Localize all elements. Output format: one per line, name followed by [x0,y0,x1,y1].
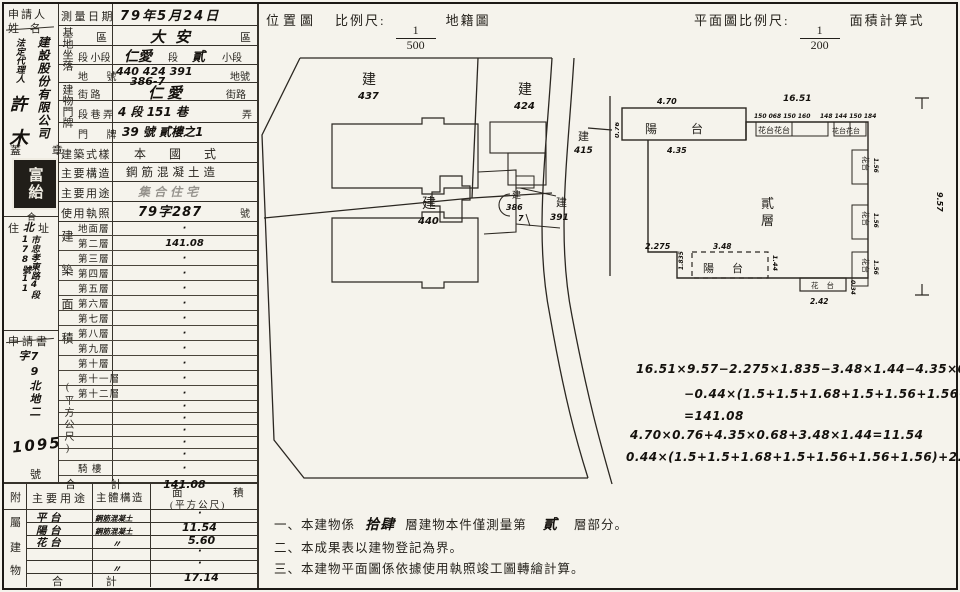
rule [4,330,58,331]
attached-header-use: 主要用途 [32,490,88,506]
top-balcony-label: 陽台 [645,121,737,136]
floor-row: · [59,412,257,424]
parcel-386-number: 386 [506,203,523,212]
flower-box-label-top-right: 花台花台 [832,126,860,135]
survey-date-label: 測量日期 [61,8,115,24]
attached-row-area: 11.54 [182,521,217,534]
section-suffix: 小段 [222,49,242,64]
floor-row: · [59,400,257,412]
attached-row-use: 花 台 [36,535,61,550]
section-label: 段 小段 [78,49,111,64]
note-1-hand-level: 貳 [543,517,558,533]
rule [58,142,257,143]
floor-area-table: 地面層· 第二層141.08 第三層· 第四層· 第五層· 第六層· 第七層· … [59,221,257,482]
floor-row: 第七層· [59,310,257,325]
district-suffix: 區 [240,29,251,45]
rule [58,162,257,163]
style-label: 建築式樣 [61,146,111,162]
floor-label-char2: 層 [761,213,774,228]
attached-row-structure: 〃 [112,537,121,550]
address-label-right: 址 [38,220,49,236]
district-label: 區 [96,29,107,45]
dim-right-seg: 1.56 [872,213,879,228]
district-value: 大安 [150,26,200,47]
location-map-drawing: 建 437 建 424 建 415 建 440 建 386 7 建 391 [258,36,615,498]
parcel-424-label: 建 [518,82,532,98]
note-3: 三、本建物平面圖係依據使用執照竣工圖轉繪計算。 [274,558,585,577]
structure-value: 鋼筋混凝土造 [126,164,219,180]
dim-bottom-balcony-width: 3.48 [713,242,732,251]
dim-top-left-small: 150 068 150 160 [754,113,810,120]
parcel-386-number2: 7 [518,214,524,223]
note-1-mid: 層建物本件僅測量第 [405,518,527,532]
floor-row: 第三層· [59,250,257,265]
floor-label-char1: 貳 [761,196,774,211]
flower-box-label-right: 花台 [861,156,871,171]
legal-agent-title: 法定代理人 [14,38,23,90]
parcel-440-label: 建 [422,196,436,212]
floor-row: 第十二層· [59,385,257,400]
attached-header-structure: 主體構造 [96,490,144,505]
attached-corner-label: 附 [10,489,21,505]
permit-suffix: 號 [240,205,250,220]
lot-value2: 386-7 [130,75,165,88]
structure-label: 主要構造 [61,165,111,181]
area-calc-line2: −0.44×(1.5+1.5+1.68+1.5+1.56+1.56+1.56) [684,387,960,401]
attached-group-char: 物 [10,562,21,578]
flower-box-label-right: 花台 [861,211,871,226]
dim-right-seg: 1.56 [872,158,879,173]
floor-row: 第四層· [59,265,257,280]
floor-row: 第二層141.08 [59,235,257,250]
application-number-big: 1095 [11,433,62,456]
flower-box-label-top-left: 花台花台 [758,125,790,135]
attached-row-structure: 鋼筋混凝土 [95,513,133,524]
note-1-pre: 一、本建物係 [274,518,355,532]
location-map-scale-label: 比例尺: [335,13,386,28]
attached-row-area: · [198,508,202,519]
note-1-post: 層部分。 [574,518,628,532]
attached-total-label: 合 計 [52,573,137,589]
flower-box-label-right: 花台 [861,258,871,273]
survey-date-value: 79年5月24日 [120,5,220,24]
section-mid-label: 段 [168,49,178,64]
site-group-label: 基地坐落 [61,27,72,81]
door-group-label: 建物門牌 [61,84,72,140]
building-survey-form: 申請人 姓 名 建設股份有限公司 法定代理人 許 木 蓋 章 富紿 合 住 北 … [0,0,960,592]
lane-suffix: 弄 [242,106,252,121]
parcel-415-label: 建 [578,129,589,143]
floor-row: · [59,448,257,460]
use-label: 主要用途 [61,185,111,201]
dim-balcony-width: 4.70 [656,97,677,106]
application-number: 79北地二字 [18,350,40,430]
floor-row: 第十一層· [59,370,257,385]
dim-notch-height: 1.835 [678,251,685,270]
floor-row: · [59,424,257,436]
floor-row: 地面層· [59,221,257,235]
bottom-flower-label: 花台 [811,280,842,290]
lot-suffix: 地號 [230,68,250,83]
floor-row: 第六層· [59,295,257,310]
floor-plan-scale-fraction: 1200 [800,24,840,53]
rule [58,181,257,182]
dim-right-seg: 1.56 [872,260,879,275]
floor-plan-drawing: 4.70 陽台 4.35 0.76 16.51 150 068 150 160 … [615,92,960,322]
area-calc-line3: =141.08 [684,409,744,423]
attached-total-value: 17.14 [184,571,219,584]
rule [26,560,257,561]
dim-bottom-flower-height: 0.34 [849,280,856,295]
parcel-437-number: 437 [357,91,379,102]
parcel-437-label: 建 [362,72,376,88]
location-map-suffix: 地籍圖 [446,13,491,28]
note-1-hand-floors: 拾肆 [365,517,395,533]
door-number-label: 門 牌 [78,126,125,141]
agent-name-char1: 許 [10,90,27,115]
dim-width-total: 16.51 [783,94,811,104]
floor-row-arcade: 騎 樓· [59,460,257,475]
section-value2: 貳 [192,46,205,65]
dim-balcony-inner: 4.35 [666,146,687,155]
floor-row: 第九層· [59,340,257,355]
permit-value: 79字287 [138,201,202,220]
attached-row-area: · [198,546,202,557]
door-number-value: 39 號 貳樓之1 [122,123,203,140]
applicant-company-name: 建設股份有限公司 [37,36,49,156]
company-seal: 富紿 [12,158,58,210]
lane-value: 4 段 151 巷 [118,103,188,120]
parcel-415-number: 415 [573,146,593,156]
attached-row-area: · [198,558,202,569]
floor-plan-title: 平面圖比例尺: [694,13,790,28]
dim-top-right-small: 148 144 150 184 [820,113,876,120]
section-value: 仁愛 [124,46,152,66]
use-value: 集合住宅 [138,183,202,200]
floor-plan-suffix: 面積計算式 [850,13,925,28]
parcel-424-number: 424 [513,101,535,112]
floor-row: · [59,436,257,448]
floor-plan-header: 平面圖比例尺: 1200 面積計算式 [694,10,925,53]
parcel-391-label: 建 [556,195,567,209]
location-map-title: 位置圖 [266,13,317,28]
dim-balcony-height: 0.76 [615,121,621,138]
floor-row: 第八層· [59,325,257,340]
lane-label: 段 巷 弄 [78,106,113,121]
address-hand-first: 北 [23,219,34,235]
cadastral-linework [262,58,612,484]
parcel-391-number: 391 [550,213,569,223]
bottom-balcony-label: 陽台 [703,261,761,275]
attached-group-char: 建 [10,539,21,555]
parcel-440-number: 440 [417,216,439,227]
attached-group-char: 屬 [10,514,21,530]
style-value: 本 國 式 [134,145,226,162]
dim-bottom-balcony-height: 1.44 [771,255,779,272]
area-calc-line5: 0.44×(1.5+1.5+1.68+1.5+1.56+1.56+1.56)+2… [626,450,960,464]
street-label: 街 路 [78,86,101,101]
dim-bottom-flower-width: 2.42 [810,297,829,306]
floor-row: 第五層· [59,280,257,295]
floor-row: 第十層· [59,355,257,370]
address-value: 市忠孝東路4段178號11 [20,235,38,327]
attached-row-structure: 鋼筋混凝土 [95,526,133,537]
dim-height-total: 9.57 [935,192,944,212]
seal-characters: 富紿 [25,167,46,201]
area-calc-line1: 16.51×9.57−2.275×1.835−3.48×1.44−4.35×0.… [636,362,960,376]
permit-label: 使用執照 [61,205,111,221]
application-number-suffix: 號 [30,466,41,482]
note-1: 一、本建物係 拾肆 層建物本件僅測量第 貳 層部分。 [274,514,628,534]
address-label-left: 住 [8,220,19,236]
street-suffix: 街路 [226,86,246,101]
parcel-386-label: 建 [512,189,521,200]
area-calc-line4: 4.70×0.76+4.35×0.68+3.48×1.44=11.54 [630,428,923,442]
note-2: 二、本成果表以建物登記為界。 [274,537,463,556]
dim-notch-width: 2.275 [645,242,671,251]
